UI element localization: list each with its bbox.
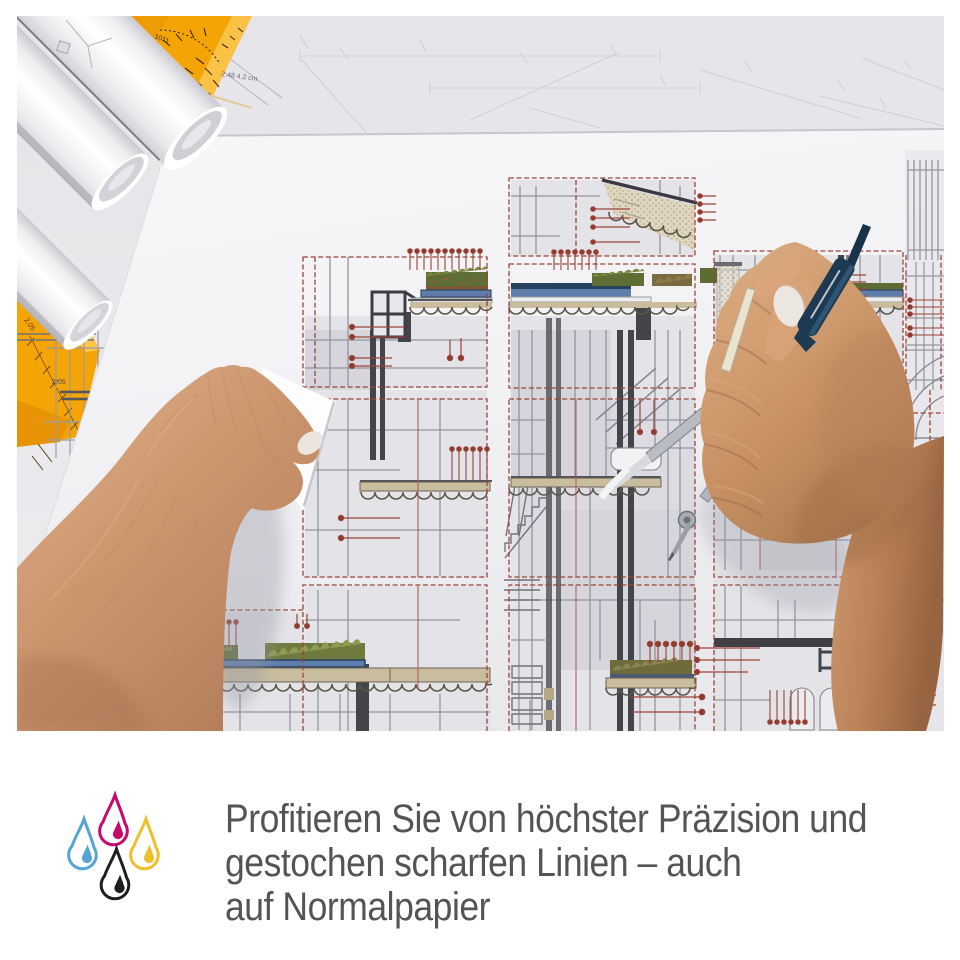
svg-text:2.06: 2.06 [52, 379, 66, 386]
